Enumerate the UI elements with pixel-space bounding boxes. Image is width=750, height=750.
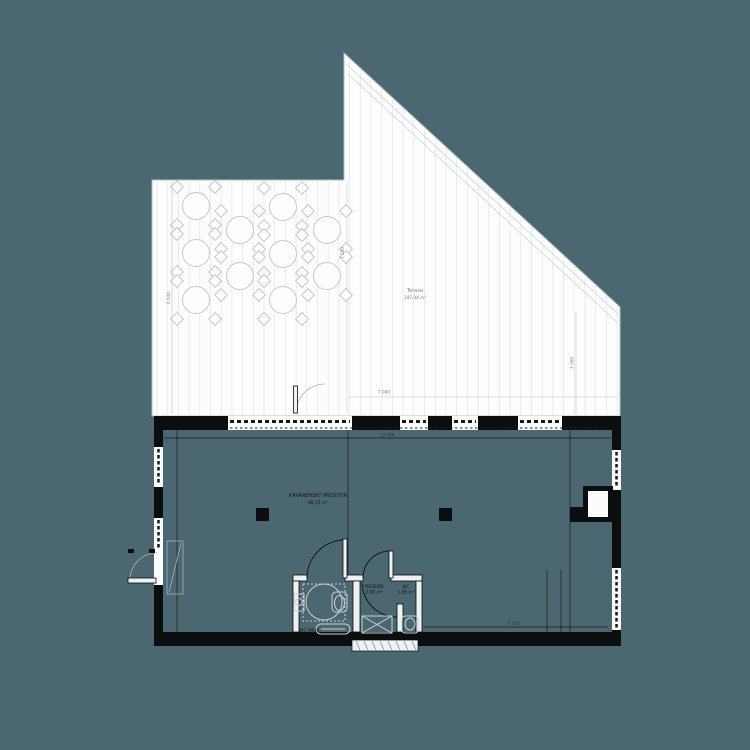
wall-segment xyxy=(154,416,228,430)
grille-frame xyxy=(352,640,418,651)
dim-text-bottom: 7 040 xyxy=(378,390,390,395)
toilet-bowl xyxy=(405,618,415,630)
table-top xyxy=(270,194,297,221)
table-top xyxy=(183,240,210,267)
wc-wall xyxy=(293,575,307,581)
terrace: 6 540 7 240 3 360 7 040 Terasa 147,94 m² xyxy=(152,53,620,416)
windbreak-diagonal xyxy=(169,543,181,592)
windbreak xyxy=(167,541,183,594)
terrace-outline xyxy=(152,53,620,416)
table-top xyxy=(227,217,254,244)
wheelchair-turning-circle xyxy=(306,584,342,620)
dim-text-right: 3 360 xyxy=(570,357,575,369)
column xyxy=(256,508,269,521)
wc-wall xyxy=(345,575,363,581)
wc-label: WC xyxy=(402,584,409,590)
building: 13 740 5 170 KAVÁRENSKÝ PROSTOR 98,75 m² xyxy=(128,416,621,651)
wc-wall xyxy=(416,581,422,632)
terrace-door-leaf xyxy=(294,386,298,413)
shaft-void xyxy=(588,491,608,517)
room-area: 98,75 m² xyxy=(308,500,328,506)
wc-wall xyxy=(391,575,422,581)
wc-door-swing xyxy=(307,540,345,578)
table-top xyxy=(270,241,297,268)
left-wall xyxy=(154,416,163,646)
column xyxy=(439,508,452,521)
table-top xyxy=(183,287,210,314)
vestibule-label: PŘEDSÍŇ xyxy=(364,582,383,590)
door-swing xyxy=(130,553,157,580)
door-leaf xyxy=(128,578,156,583)
door-hinge xyxy=(149,549,155,553)
top-wall xyxy=(154,416,621,430)
wc-door-leaf xyxy=(343,539,347,578)
vestibule-area: 2,90 m² xyxy=(365,590,382,596)
wc-wall xyxy=(353,581,360,632)
wc-accessible-area: 4,15 m² xyxy=(301,634,318,640)
room-label: KAVÁRENSKÝ PROSTOR xyxy=(289,492,348,499)
wc-area: 1,85 m² xyxy=(397,590,414,596)
table-top xyxy=(270,287,297,314)
table-top xyxy=(183,193,210,220)
floor-grille xyxy=(352,640,418,651)
entrance-door xyxy=(128,549,157,583)
dim-text-top: 13 740 xyxy=(380,433,395,438)
dim-text-left: 6 540 xyxy=(166,292,171,304)
door-hinge xyxy=(128,549,134,553)
floorplan-drawing: 6 540 7 240 3 360 7 040 Terasa 147,94 m² xyxy=(0,0,750,750)
toilet-bowl xyxy=(335,596,345,611)
vestibule-door-leaf xyxy=(389,551,393,578)
right-wall xyxy=(612,416,621,646)
table-top xyxy=(227,263,254,290)
dim-text-center: 7 240 xyxy=(340,247,345,259)
dim-text-interior: 5 170 xyxy=(508,621,520,626)
wc-accessible-label: WC IMOB. xyxy=(299,628,321,634)
table-top xyxy=(314,263,341,290)
shaft-wall xyxy=(570,507,587,522)
floorplan-canvas: 6 540 7 240 3 360 7 040 Terasa 147,94 m² xyxy=(0,0,750,750)
turning-area-dashed xyxy=(303,584,345,621)
terrace-area: 147,94 m² xyxy=(404,295,427,301)
vestibule-door-swing xyxy=(363,551,391,578)
chimney-shaft xyxy=(570,486,613,522)
terrace-label: Terasa xyxy=(406,288,423,294)
table-top xyxy=(314,217,341,244)
